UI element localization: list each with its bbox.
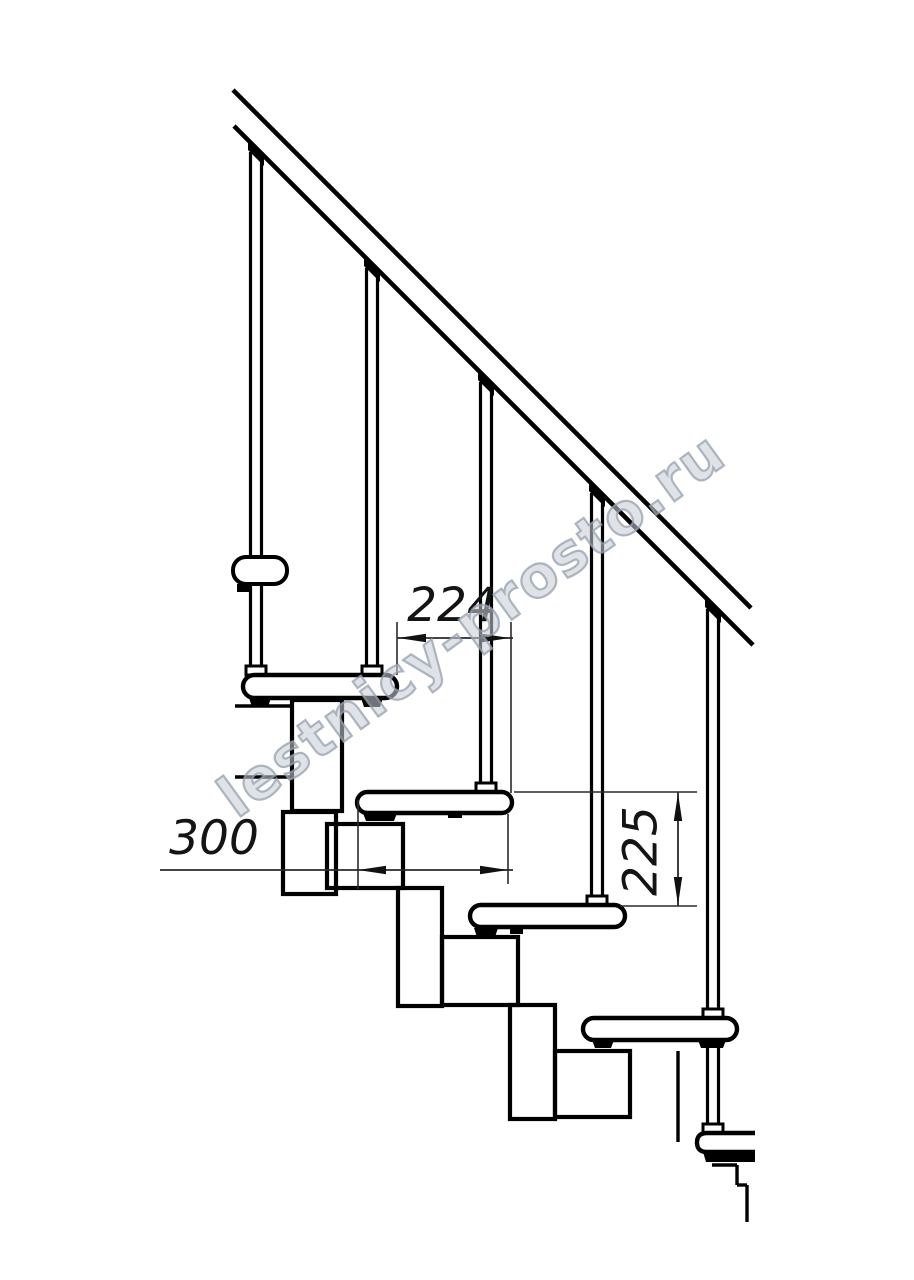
module-4: [555, 1051, 630, 1117]
dim-run-value: 224: [407, 578, 497, 633]
module-neck-2: [398, 888, 442, 1006]
dim-run-arrow-left: [398, 634, 426, 642]
tread-5-partial: [697, 1133, 755, 1152]
tread-2: [357, 792, 512, 813]
dim-depth-value: 300: [169, 811, 259, 866]
lower-cut-step: [712, 1165, 747, 1222]
tread-4: [583, 1018, 737, 1040]
baluster-4: [587, 482, 607, 905]
dimension-rise: 225: [514, 792, 697, 906]
handrail-section-fitting: [233, 557, 287, 584]
fitting-clamp: [237, 584, 251, 592]
baluster-5: [703, 598, 723, 1133]
drawing-canvas: 224 300 225: [0, 0, 914, 1280]
handrail-bottom-edge: [234, 126, 753, 645]
module-neck-3: [510, 1005, 555, 1119]
dim-rise-arrow-down: [674, 877, 682, 905]
dim-depth-arrow-left: [358, 866, 386, 874]
dim-rise-value: 225: [614, 806, 669, 896]
dim-rise-arrow-up: [674, 793, 682, 821]
dimension-run: 224: [397, 578, 513, 793]
baluster-1: [233, 141, 287, 675]
dim-run-arrow-right: [482, 634, 510, 642]
module-neck-1: [292, 700, 342, 811]
dim-depth-arrow-right: [480, 866, 508, 874]
tread-3: [470, 905, 625, 927]
staircase-technical-drawing: 224 300 225 lestnicy-prosto.ru: [0, 0, 914, 1280]
tread-1: [243, 675, 397, 698]
module-2: [327, 824, 403, 888]
baluster-2: [362, 257, 382, 675]
module-3: [442, 937, 518, 1005]
